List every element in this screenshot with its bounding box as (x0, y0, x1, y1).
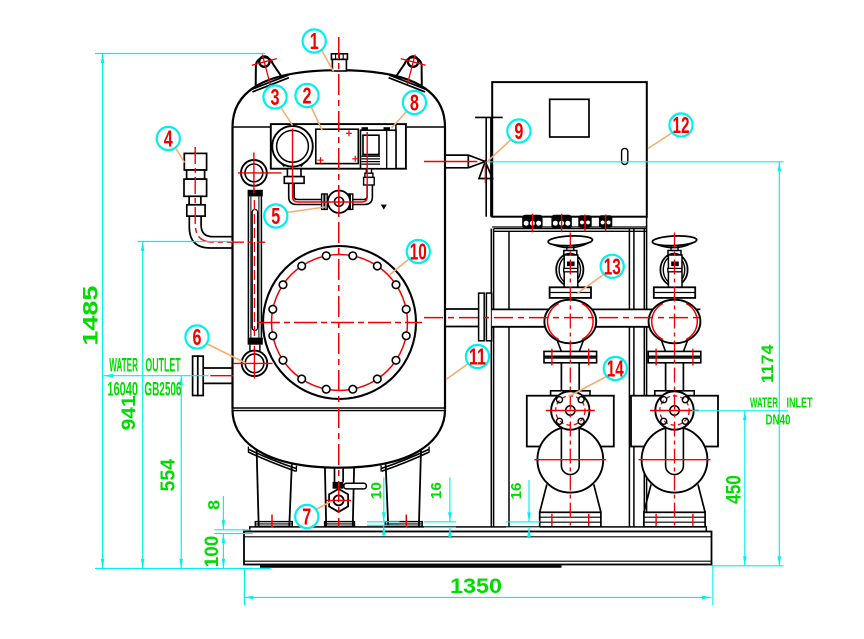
svg-text:DN40: DN40 (766, 413, 791, 429)
svg-text:12: 12 (673, 112, 690, 138)
svg-text:3: 3 (271, 84, 280, 110)
svg-text:1: 1 (310, 28, 319, 54)
svg-text:9: 9 (514, 118, 523, 144)
svg-text:5: 5 (271, 203, 280, 229)
svg-text:1485: 1485 (80, 285, 103, 345)
svg-text:GB2506: GB2506 (144, 378, 181, 400)
svg-text:10: 10 (410, 239, 427, 265)
svg-text:INLET: INLET (787, 396, 813, 412)
svg-text:WATER: WATER (109, 354, 138, 376)
svg-text:11: 11 (469, 344, 486, 370)
svg-text:13: 13 (604, 254, 621, 280)
svg-text:14: 14 (607, 356, 624, 382)
svg-text:16040: 16040 (107, 378, 138, 400)
svg-text:16: 16 (428, 482, 445, 499)
svg-text:7: 7 (302, 504, 311, 530)
svg-text:8: 8 (205, 500, 224, 510)
svg-text:1174: 1174 (758, 344, 777, 383)
svg-text:1350: 1350 (450, 575, 502, 598)
svg-text:2: 2 (303, 83, 312, 109)
svg-text:554: 554 (158, 458, 180, 491)
svg-text:16: 16 (508, 483, 525, 500)
svg-text:OUTLET: OUTLET (145, 354, 180, 376)
svg-text:WATER: WATER (750, 396, 778, 412)
svg-text:8: 8 (410, 90, 419, 116)
svg-text:10: 10 (368, 482, 385, 499)
svg-text:4: 4 (164, 126, 173, 152)
svg-text:100: 100 (201, 536, 223, 568)
svg-text:450: 450 (723, 475, 746, 504)
svg-text:6: 6 (193, 324, 202, 350)
